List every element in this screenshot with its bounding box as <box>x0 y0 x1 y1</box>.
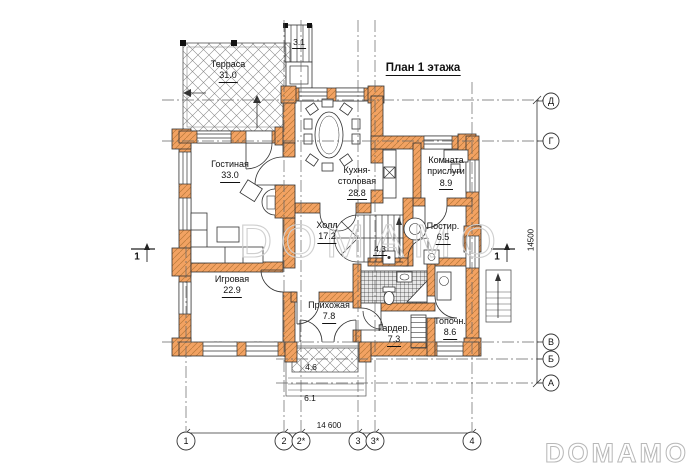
label-stair-area: 4.3 <box>373 244 387 256</box>
room-label-hall: Холл17.2 <box>316 220 337 244</box>
side-porch <box>486 270 511 322</box>
room-label-maid-room: Комната прислуги8.9 <box>422 155 470 190</box>
floor-plan-canvas: DOMAMO DOMAMO План 1 этажа Терраса31.0 Г… <box>0 0 692 470</box>
chair <box>352 119 360 129</box>
watermark-corner: DOMAMO <box>545 438 689 468</box>
axis-col-label-2s: 2* <box>297 436 306 446</box>
plan-title: План 1 этажа <box>386 62 461 74</box>
label-top-steps-area: 3.1 <box>292 37 306 49</box>
section-mark-right: 1 <box>494 252 500 263</box>
axis-col-label-3s: 3* <box>371 436 380 446</box>
coffee-table <box>217 227 239 242</box>
label-porch-width: 6.1 <box>304 393 316 404</box>
axis-row-label-a: А <box>548 378 554 388</box>
axis-row-label-d: Д <box>548 96 554 106</box>
section-mark-left: 1 <box>134 252 140 263</box>
top-steps <box>283 23 312 88</box>
chair <box>352 134 360 144</box>
toilet-icon <box>384 292 394 305</box>
chair <box>306 103 319 115</box>
room-label-entry-hall: Прихожая7.8 <box>308 300 350 324</box>
room-label-playroom: Игровая22.9 <box>215 274 249 298</box>
room-label-living-room: Гостиная33.0 <box>211 159 249 183</box>
entry-porch <box>286 346 366 396</box>
room-label-terrace: Терраса31.0 <box>211 59 246 83</box>
room-label-wardrobe: Гардер.7.3 <box>378 323 410 347</box>
room-label-boiler-room: Топочн.8.6 <box>434 316 466 340</box>
dim-overall-width: 14 600 <box>317 421 341 430</box>
chair <box>340 103 353 115</box>
axis-col-label-4: 4 <box>469 436 474 446</box>
armchair <box>240 180 262 202</box>
watermark-center: DOMAMO <box>239 215 505 267</box>
chair <box>304 119 312 129</box>
room-label-laundry: Постир.6.5 <box>427 221 460 245</box>
label-porch-area: 4.6 <box>305 362 317 373</box>
dim-overall-height: 14500 <box>527 229 536 251</box>
room-label-kitchen-dining: Кухня-столовая28.8 <box>331 165 383 200</box>
axis-row-label-b: Б <box>548 354 554 364</box>
floor-plan-drawing: DOMAMO DOMAMO <box>0 0 692 470</box>
axis-col-label-1: 1 <box>183 436 188 446</box>
chair <box>304 134 312 144</box>
axis-col-label-3: 3 <box>355 436 360 446</box>
sink-icon <box>397 272 412 282</box>
terrace-deck <box>180 40 290 131</box>
chair <box>306 154 319 166</box>
wardrobe-shelves <box>411 315 426 348</box>
section-arrow-icon <box>144 243 150 250</box>
stairs-up-arrow-icon <box>495 273 501 281</box>
axis-col-label-2: 2 <box>281 436 286 446</box>
bathroom <box>361 271 427 305</box>
axis-row-label-v: В <box>548 337 554 347</box>
axis-row-label-g: Г <box>549 136 554 146</box>
